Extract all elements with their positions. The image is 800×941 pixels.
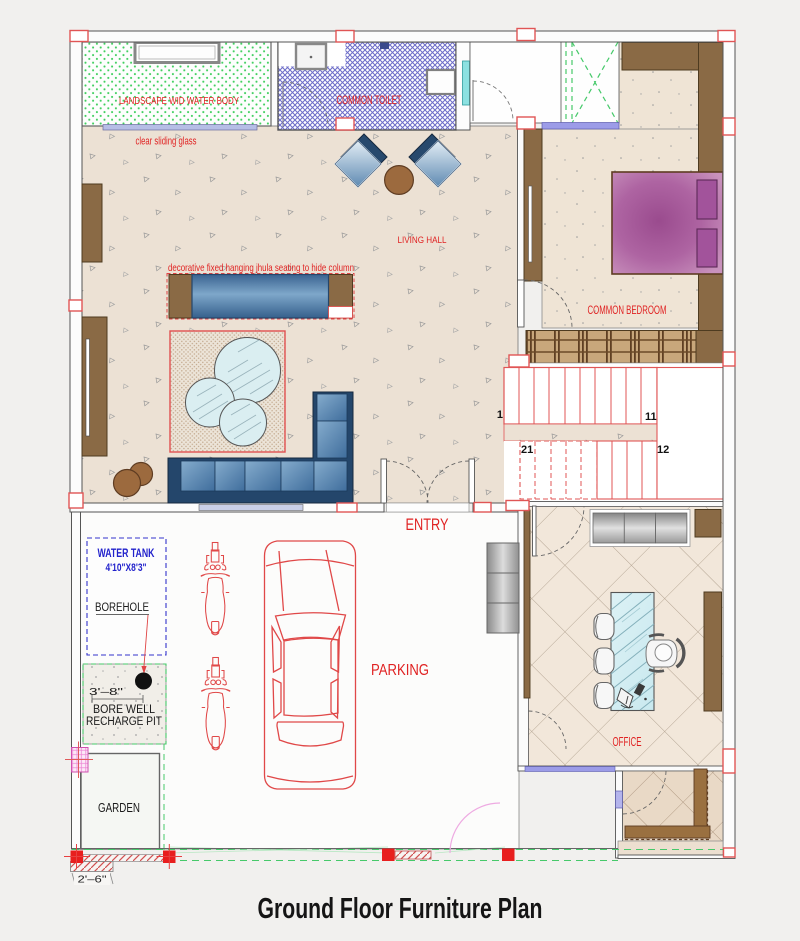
svg-text:GARDEN: GARDEN — [98, 800, 140, 815]
svg-text:OFFICE: OFFICE — [613, 735, 642, 749]
svg-text:21: 21 — [521, 444, 533, 456]
svg-text:PARKING: PARKING — [371, 662, 429, 679]
svg-text:WATER TANK: WATER TANK — [98, 546, 155, 560]
svg-text:4'10"X8'3": 4'10"X8'3" — [106, 562, 147, 574]
svg-text:clear sliding glass: clear sliding glass — [136, 136, 197, 148]
svg-text:12: 12 — [657, 444, 669, 456]
svg-text:COMMON BEDROOM: COMMON BEDROOM — [588, 305, 667, 317]
svg-text:COMMON TOILET: COMMON TOILET — [337, 95, 402, 107]
svg-text:BOREHOLE: BOREHOLE — [95, 602, 149, 614]
svg-text:ENTRY: ENTRY — [406, 515, 449, 534]
svg-text:1: 1 — [497, 409, 503, 421]
svg-text:LIVING HALL: LIVING HALL — [398, 235, 447, 246]
svg-text:2'–6": 2'–6" — [78, 875, 108, 886]
svg-text:3'–8": 3'–8" — [89, 686, 123, 698]
svg-text:BORE WELL: BORE WELL — [93, 704, 156, 716]
svg-text:LANDSCAPE WID WATER BODY: LANDSCAPE WID WATER BODY — [119, 95, 239, 107]
svg-text:11: 11 — [645, 411, 657, 423]
svg-text:Ground Floor Furniture Plan: Ground Floor Furniture Plan — [258, 893, 543, 925]
svg-text:RECHARGE PIT: RECHARGE PIT — [86, 716, 162, 728]
svg-text:decorative fixed hanging jhula: decorative fixed hanging jhula seating t… — [168, 262, 354, 274]
